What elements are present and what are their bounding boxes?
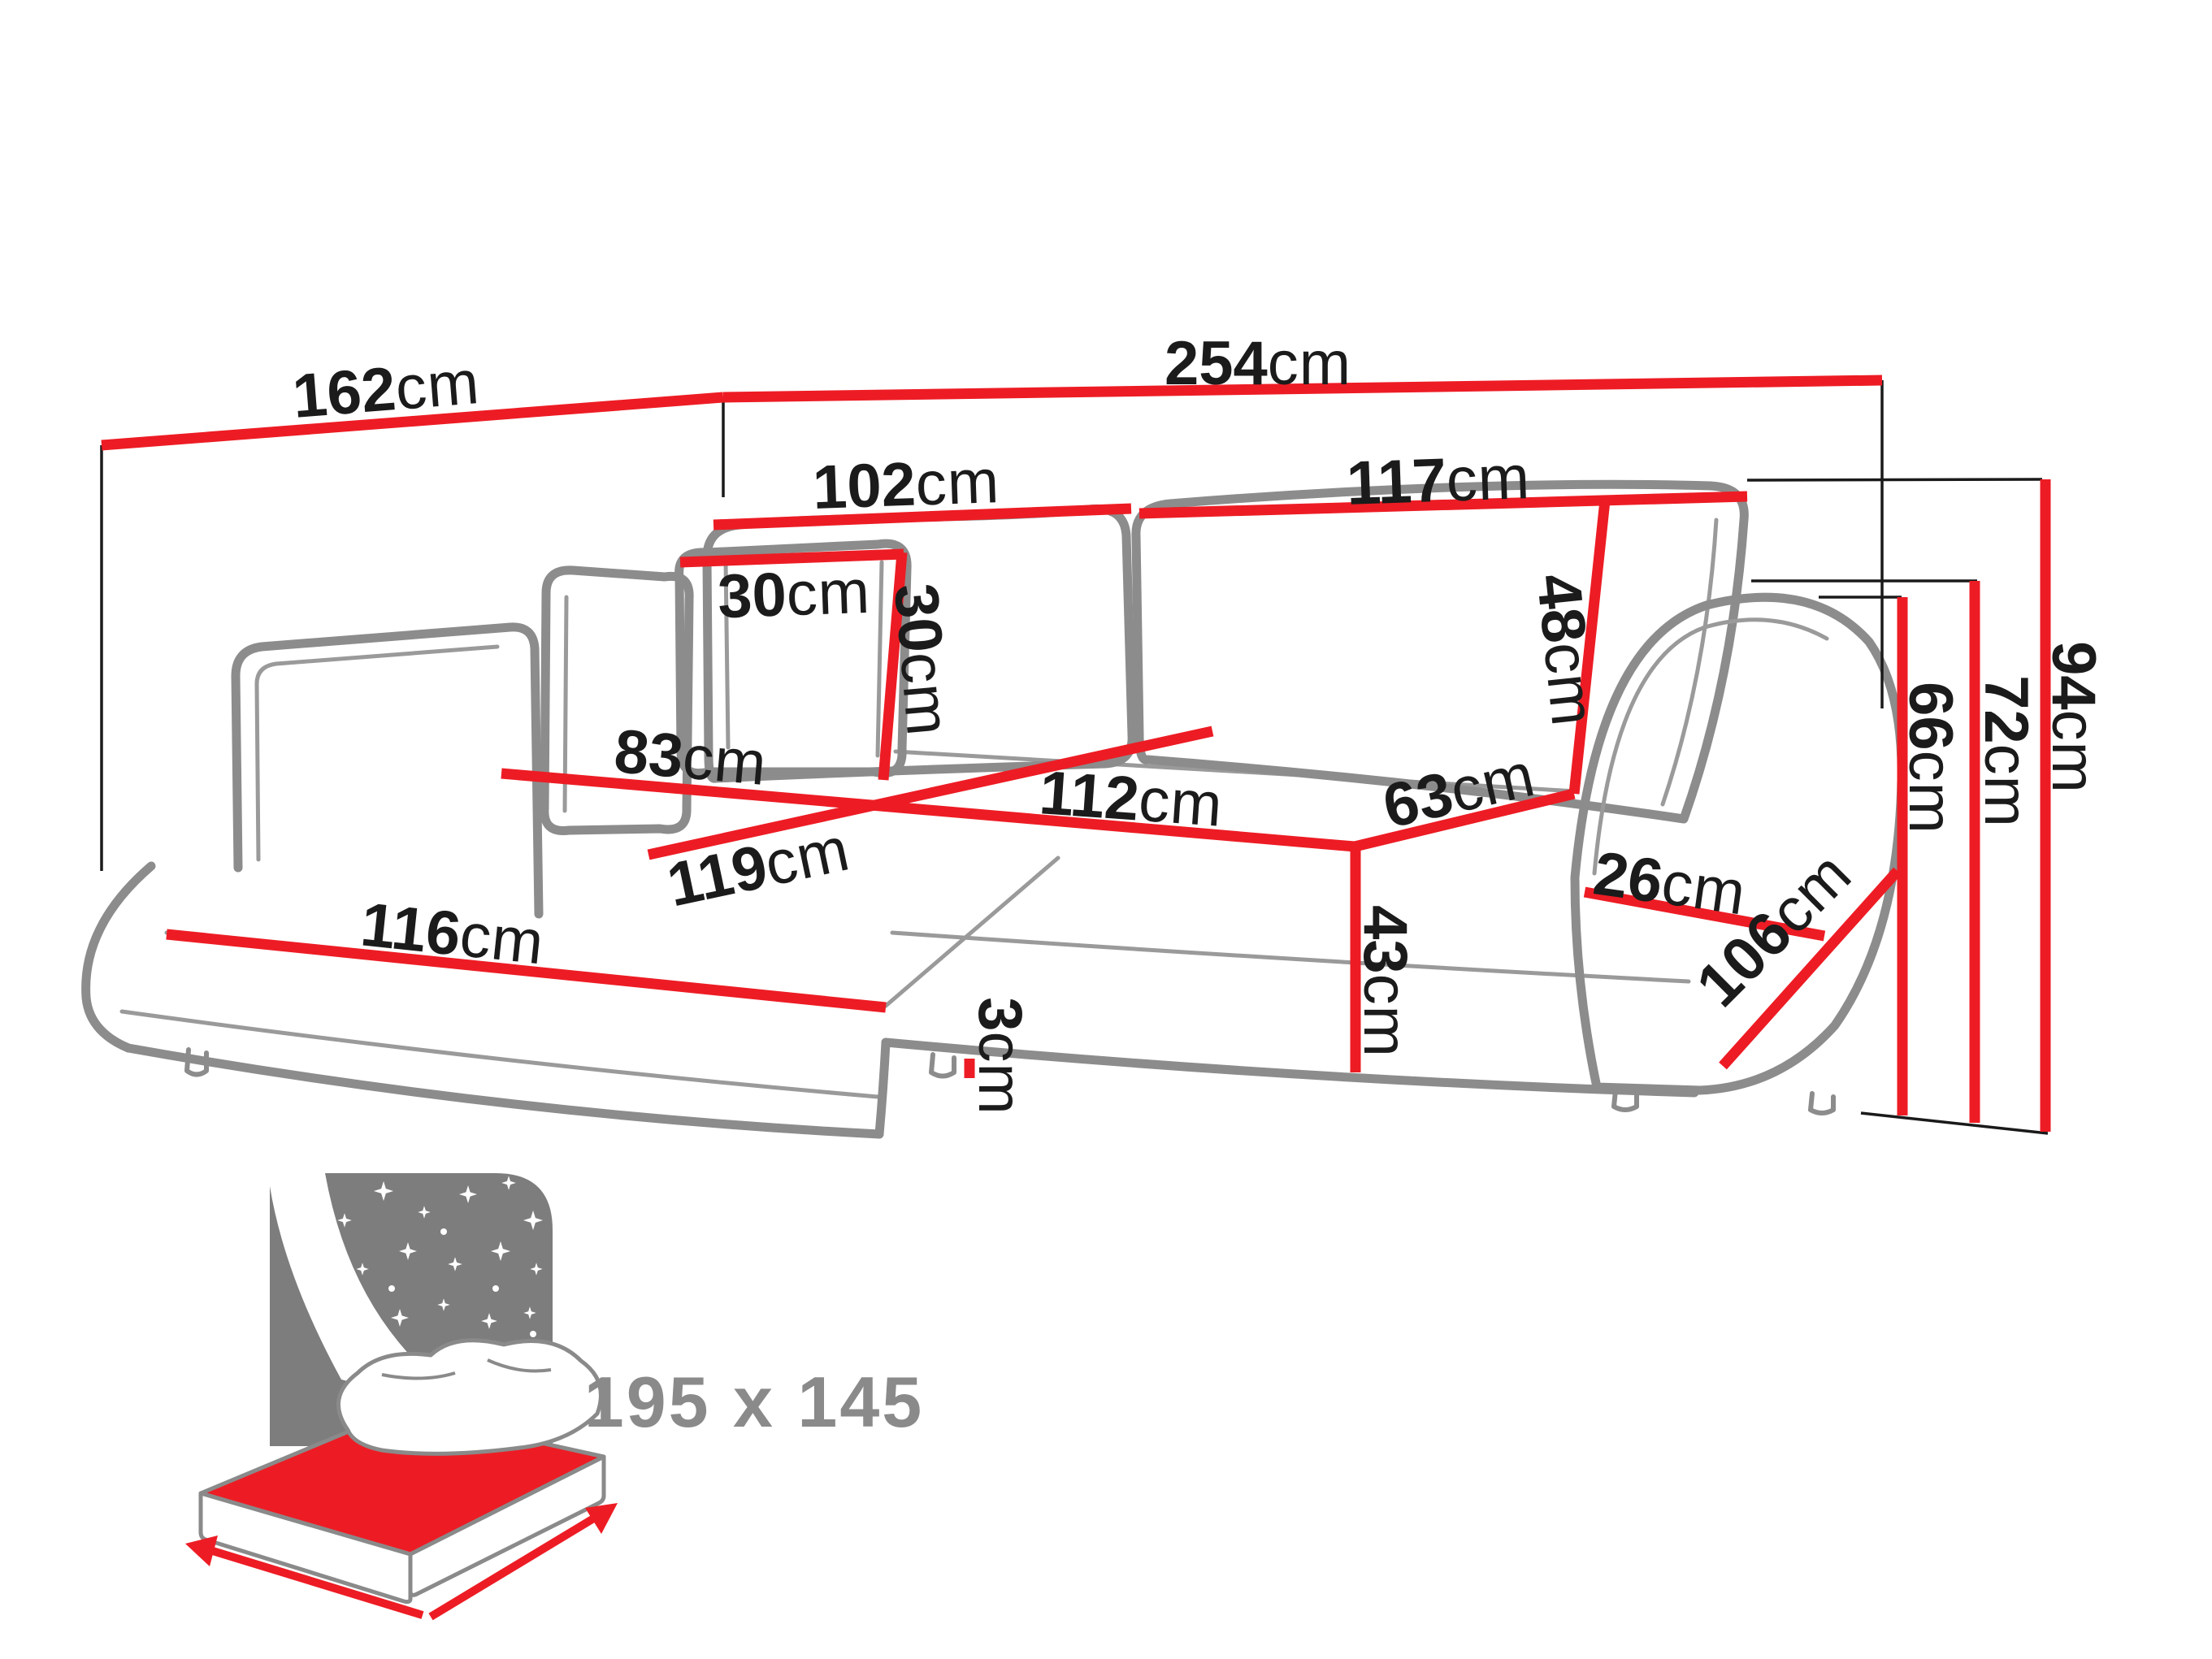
label-112: 112cm [1037, 758, 1225, 840]
label-26: 26cm [1590, 838, 1750, 928]
label-254: 254cm [1165, 329, 1351, 398]
star-dot [440, 1228, 447, 1235]
label-117: 117cm [1346, 443, 1532, 518]
label-30-width: 30cm [717, 557, 872, 632]
label-48: 48cm [1523, 570, 1607, 730]
label-162: 162cm [290, 348, 482, 431]
arrowhead [185, 1536, 218, 1566]
dimension-lines [102, 380, 2045, 1132]
base-corner-edge [879, 1042, 886, 1134]
label-72: 72cm [1971, 675, 2041, 828]
label-83: 83cm [612, 717, 770, 799]
label-116: 116cm [358, 890, 548, 977]
star-dot [388, 1285, 395, 1292]
chaise-left-bulge [86, 866, 151, 1048]
sofa-leg [931, 1055, 954, 1076]
chaise-base-seam [122, 1011, 878, 1097]
star-dot [492, 1285, 499, 1292]
star-dot [530, 1331, 536, 1337]
small-pillow-measured-inner [878, 562, 882, 756]
dimension-labels: 162cm 254cm 102cm 117cm 30cm 30cm 48cm 8… [290, 329, 2108, 1115]
total-height-ref-line [1747, 479, 2042, 480]
right-base-seam [892, 933, 1689, 981]
sofa-leg [1811, 1094, 1833, 1113]
floor-ref-line [1861, 1113, 2048, 1133]
label-94: 94cm [2039, 641, 2108, 794]
sofa-dimension-diagram: 162cm 254cm 102cm 117cm 30cm 30cm 48cm 8… [0, 0, 2212, 1659]
back-cushion-right-piping [1663, 520, 1716, 804]
sleeping-area-size: 195 x 145 [584, 1362, 925, 1442]
sleeping-function-icon: 195 x 145 [185, 1173, 924, 1617]
label-66: 66cm [1896, 682, 1965, 834]
label-43: 43cm [1351, 905, 1420, 1058]
chaise-back-arm [236, 627, 539, 914]
diagram-canvas: 162cm 254cm 102cm 117cm 30cm 30cm 48cm 8… [0, 0, 2212, 1659]
label-3: 3cm [965, 997, 1034, 1115]
chaise-seat-right-edge [886, 858, 1058, 1006]
label-102: 102cm [812, 447, 1001, 522]
label-30-height: 30cm [881, 581, 963, 739]
chaise-back-arm-inner [257, 647, 497, 860]
